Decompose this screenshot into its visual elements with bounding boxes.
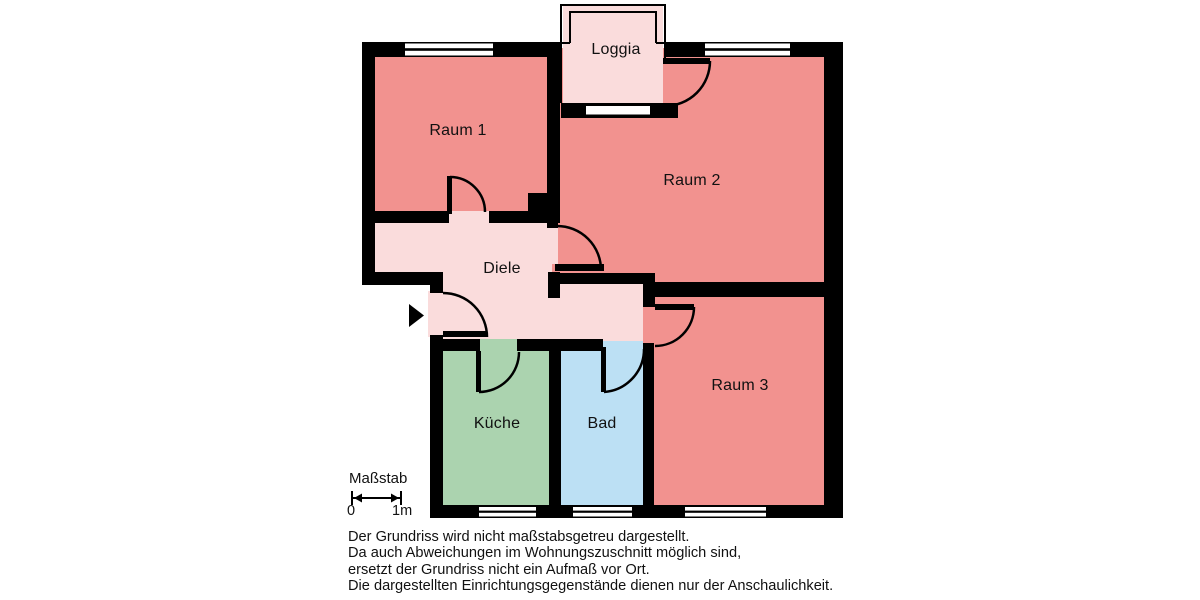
raum2-window — [705, 44, 790, 56]
kueche-window — [479, 507, 536, 517]
disclaimer-line-3: ersetzt der Grundriss nicht ein Aufmaß v… — [348, 562, 833, 578]
loggia-label: Loggia — [591, 41, 640, 59]
raum3-floor — [648, 290, 828, 510]
floorplan-drawing — [0, 0, 1200, 600]
loggia-window — [586, 106, 650, 115]
disclaimer-line-1: Der Grundriss wird nicht maßstabsgetreu … — [348, 529, 833, 545]
floorplan-page: Loggia Raum 1 Raum 2 Raum 3 Diele Küche … — [0, 0, 1200, 600]
raum3-window — [685, 507, 766, 517]
corridor-opening — [548, 298, 560, 339]
scale-title: Maßstab — [349, 470, 407, 487]
disclaimer-line-4: Die dargestellten Einrichtungsgegenständ… — [348, 578, 833, 594]
diele-floor-corridor — [550, 280, 648, 342]
diele-floor-upper — [368, 218, 552, 276]
disclaimer-line-2: Da auch Abweichungen im Wohnungszuschnit… — [348, 545, 833, 561]
entrance-doorway — [428, 293, 443, 335]
bad-window — [573, 507, 632, 517]
raum2-doorway — [547, 228, 558, 264]
scale-arrow-right-icon — [391, 494, 399, 503]
diele-label: Diele — [483, 260, 520, 278]
entrance-arrow-icon — [409, 304, 424, 327]
kueche-label: Küche — [474, 415, 520, 433]
raum3-doorway — [643, 307, 655, 343]
raum1-window — [405, 44, 493, 56]
scale-start-label: 0 — [347, 503, 355, 519]
raum3-label: Raum 3 — [711, 377, 768, 395]
scale-end-label: 1m — [392, 503, 412, 519]
bad-label: Bad — [587, 415, 616, 433]
kueche-doorway — [480, 339, 517, 351]
raum2-label: Raum 2 — [663, 172, 720, 190]
bad-doorway — [603, 341, 643, 351]
raum1-label: Raum 1 — [429, 122, 486, 140]
raum1-doorway — [449, 211, 489, 223]
disclaimer-text: Der Grundriss wird nicht maßstabsgetreu … — [348, 529, 833, 595]
scale-arrow-left-icon — [354, 494, 362, 503]
